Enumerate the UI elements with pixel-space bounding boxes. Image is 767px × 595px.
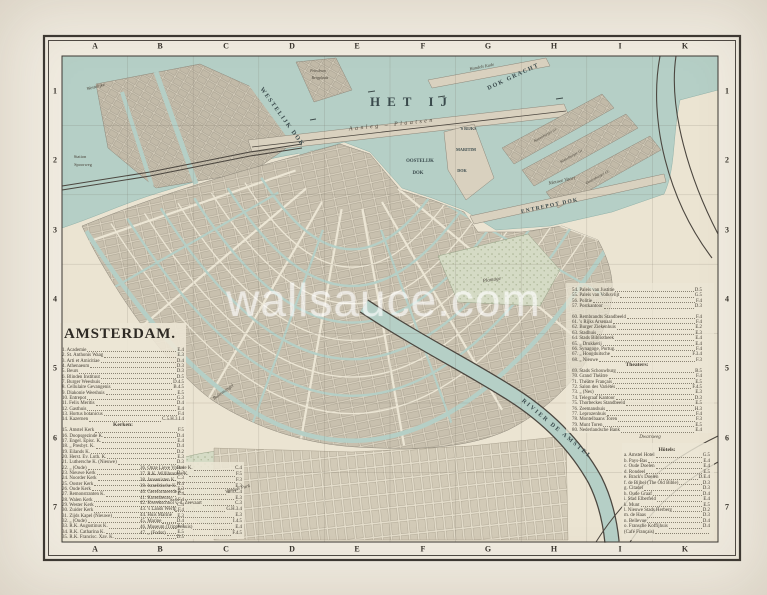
legend-leader [616, 388, 691, 389]
legend-leader [616, 350, 695, 351]
grid-label: 4 [725, 295, 729, 304]
legend-leader [615, 340, 694, 341]
legend-leader [604, 308, 694, 309]
grid-label: F [421, 42, 426, 51]
legend-leader [87, 351, 176, 352]
legend-leader [647, 522, 702, 523]
legend-leader [597, 334, 694, 335]
legend-leader [115, 538, 176, 539]
legend-leader [102, 442, 176, 443]
grid-label: 1 [725, 87, 729, 96]
legend-leader [96, 405, 176, 406]
legend-leader [617, 372, 694, 373]
grid-label: 6 [725, 434, 729, 443]
legend-leader [173, 517, 234, 518]
grid-label: A [92, 42, 98, 51]
map-label: Bergplaats [312, 76, 329, 80]
legend-item-gridref: F.4.5 [232, 531, 242, 537]
legend-leader [626, 405, 694, 406]
legend-leader [657, 501, 702, 502]
grid-label: 2 [53, 156, 57, 165]
south-blocks [214, 436, 568, 540]
map-label: Petroleum [309, 69, 326, 73]
grid-label: E [354, 42, 359, 51]
legend-leader [621, 432, 694, 433]
legend-leader [627, 318, 695, 319]
grid-label: I [618, 42, 621, 51]
legend-item-name: 14. Kazernen [62, 417, 88, 422]
legend-item-gridref: F.3 [696, 358, 702, 363]
grid-label: F [421, 545, 426, 554]
legend-leader [107, 458, 176, 459]
legend-item-gridref: C.5.H.3.I.4 [162, 417, 184, 422]
map-label: OOSTELIJK [406, 159, 434, 164]
legend-leader [162, 523, 232, 524]
legend-item: 47. „ (Fodor)F.4.5 [140, 531, 242, 537]
legend-leader [184, 494, 226, 495]
legend-leader [95, 432, 177, 433]
legend-leader [659, 479, 697, 480]
legend-leader [679, 484, 701, 485]
map-label: DOK [457, 168, 467, 173]
grid-label: E [354, 545, 359, 554]
grid-label: 3 [53, 226, 57, 235]
legend-leader [606, 410, 694, 411]
grid-label: 5 [53, 364, 57, 373]
legend-item-name: 57. Postkantoor [572, 304, 603, 309]
grid-label: D [289, 545, 295, 554]
legend-leader [171, 499, 234, 500]
grid-label: B [157, 545, 162, 554]
legend-leader [648, 462, 702, 463]
grid-label: C [223, 42, 229, 51]
legend-leader [96, 448, 176, 449]
grid-label: C [223, 545, 229, 554]
legend-leader [189, 476, 235, 477]
grid-label: 7 [725, 503, 729, 512]
map-label: 'S RIJKS [460, 126, 478, 131]
legend-leader [175, 511, 225, 512]
map-label: Spoorweg [74, 162, 93, 167]
legend-item-name: 47. „ (Fodor) [140, 531, 166, 537]
legend-leader [79, 373, 175, 374]
legend-column: Hôtels:a. Amstel HotelG.5b. Pays-BasE.4c… [624, 448, 710, 535]
map-label: Station [74, 154, 87, 159]
legend-leader [593, 302, 695, 303]
legend-column: 36. Onze Lieve Vrouwe K.C.437. R.K. Will… [140, 466, 242, 537]
legend-leader [613, 383, 694, 384]
legend-leader [615, 291, 693, 292]
legend-item-name: 80. Nederlandsche Bank [572, 428, 620, 433]
grid-label: K [682, 545, 688, 554]
grid-label: B [157, 42, 162, 51]
legend-item-name: 68. „ Nieuwe [572, 358, 598, 363]
legend-leader [178, 488, 234, 489]
grid-label: H [551, 545, 557, 554]
map-label: Dwarsweg [638, 435, 661, 440]
map-title: AMSTERDAM. [64, 326, 176, 343]
legend-item-gridref: E.4 [695, 428, 702, 433]
legend-column: 54. Paleis van JustitieD.555. Paleis van… [572, 288, 702, 434]
legend-leader [653, 495, 702, 496]
grid-label: 5 [725, 364, 729, 373]
legend-leader [646, 473, 702, 474]
legend-leader [111, 389, 172, 390]
legend-leader [603, 426, 694, 427]
map-label: HET IJ [370, 94, 454, 109]
grid-label: I [618, 545, 621, 554]
map-label: DOK [413, 171, 424, 176]
legend-leader [603, 345, 695, 346]
map-label: MARITIM [456, 147, 476, 152]
legend-leader [203, 505, 234, 506]
legend-leader [194, 470, 234, 471]
legend-leader [656, 457, 702, 458]
legend-leader [647, 517, 702, 518]
grid-label: K [682, 42, 688, 51]
grid-label: 6 [53, 434, 57, 443]
legend-leader [104, 437, 176, 438]
grid-label: D [289, 42, 295, 51]
legend-leader [616, 399, 694, 400]
grid-label: 4 [53, 295, 57, 304]
legend-leader [104, 357, 176, 358]
grid-label: A [92, 545, 98, 554]
legend-leader [101, 378, 176, 379]
legend-leader [609, 378, 695, 379]
legend-item-gridref: D.4 [703, 524, 710, 529]
legend-leader [617, 329, 695, 330]
legend-item-name: 35. R.K. Francisc. Xav. K. [62, 535, 114, 540]
legend-leader [87, 399, 176, 400]
map-print-photo: HET IJAanleg – PlaatsenWESTELIJK DOKDOK … [0, 0, 767, 595]
legend-leader [673, 511, 702, 512]
legend-leader [104, 415, 177, 416]
legend-leader [644, 490, 702, 491]
legend-leader [118, 464, 176, 465]
grid-label: G [485, 42, 491, 51]
legend-item-gridref: D.3 [695, 304, 702, 309]
legend-leader [656, 468, 703, 469]
legend-leader [641, 506, 703, 507]
grid-label: 3 [725, 226, 729, 235]
grid-label: 2 [725, 156, 729, 165]
legend-leader [91, 453, 176, 454]
legend-leader [101, 383, 172, 384]
legend-leader [618, 421, 695, 422]
grid-label: G [485, 545, 491, 554]
legend-leader [106, 394, 177, 395]
legend-leader [90, 367, 176, 368]
legend-leader [87, 410, 176, 411]
grid-label: 1 [53, 87, 57, 96]
grid-label: 7 [53, 503, 57, 512]
grid-label: H [551, 42, 557, 51]
legend-leader [611, 356, 691, 357]
legend-leader [595, 394, 695, 395]
legend-item: 80. Nederlandsche BankE.4 [572, 428, 702, 433]
legend-leader [101, 362, 176, 363]
legend-leader [669, 528, 702, 529]
legend-leader [167, 535, 232, 536]
legend-item: (Café Français) [624, 530, 710, 535]
legend-leader [193, 529, 234, 530]
legend-item-name: (Café Français) [624, 530, 654, 535]
legend-leader [607, 415, 695, 416]
legend-leader [177, 482, 235, 483]
legend-leader [620, 297, 693, 298]
legend-leader [613, 323, 695, 324]
legend-leader [655, 533, 709, 534]
